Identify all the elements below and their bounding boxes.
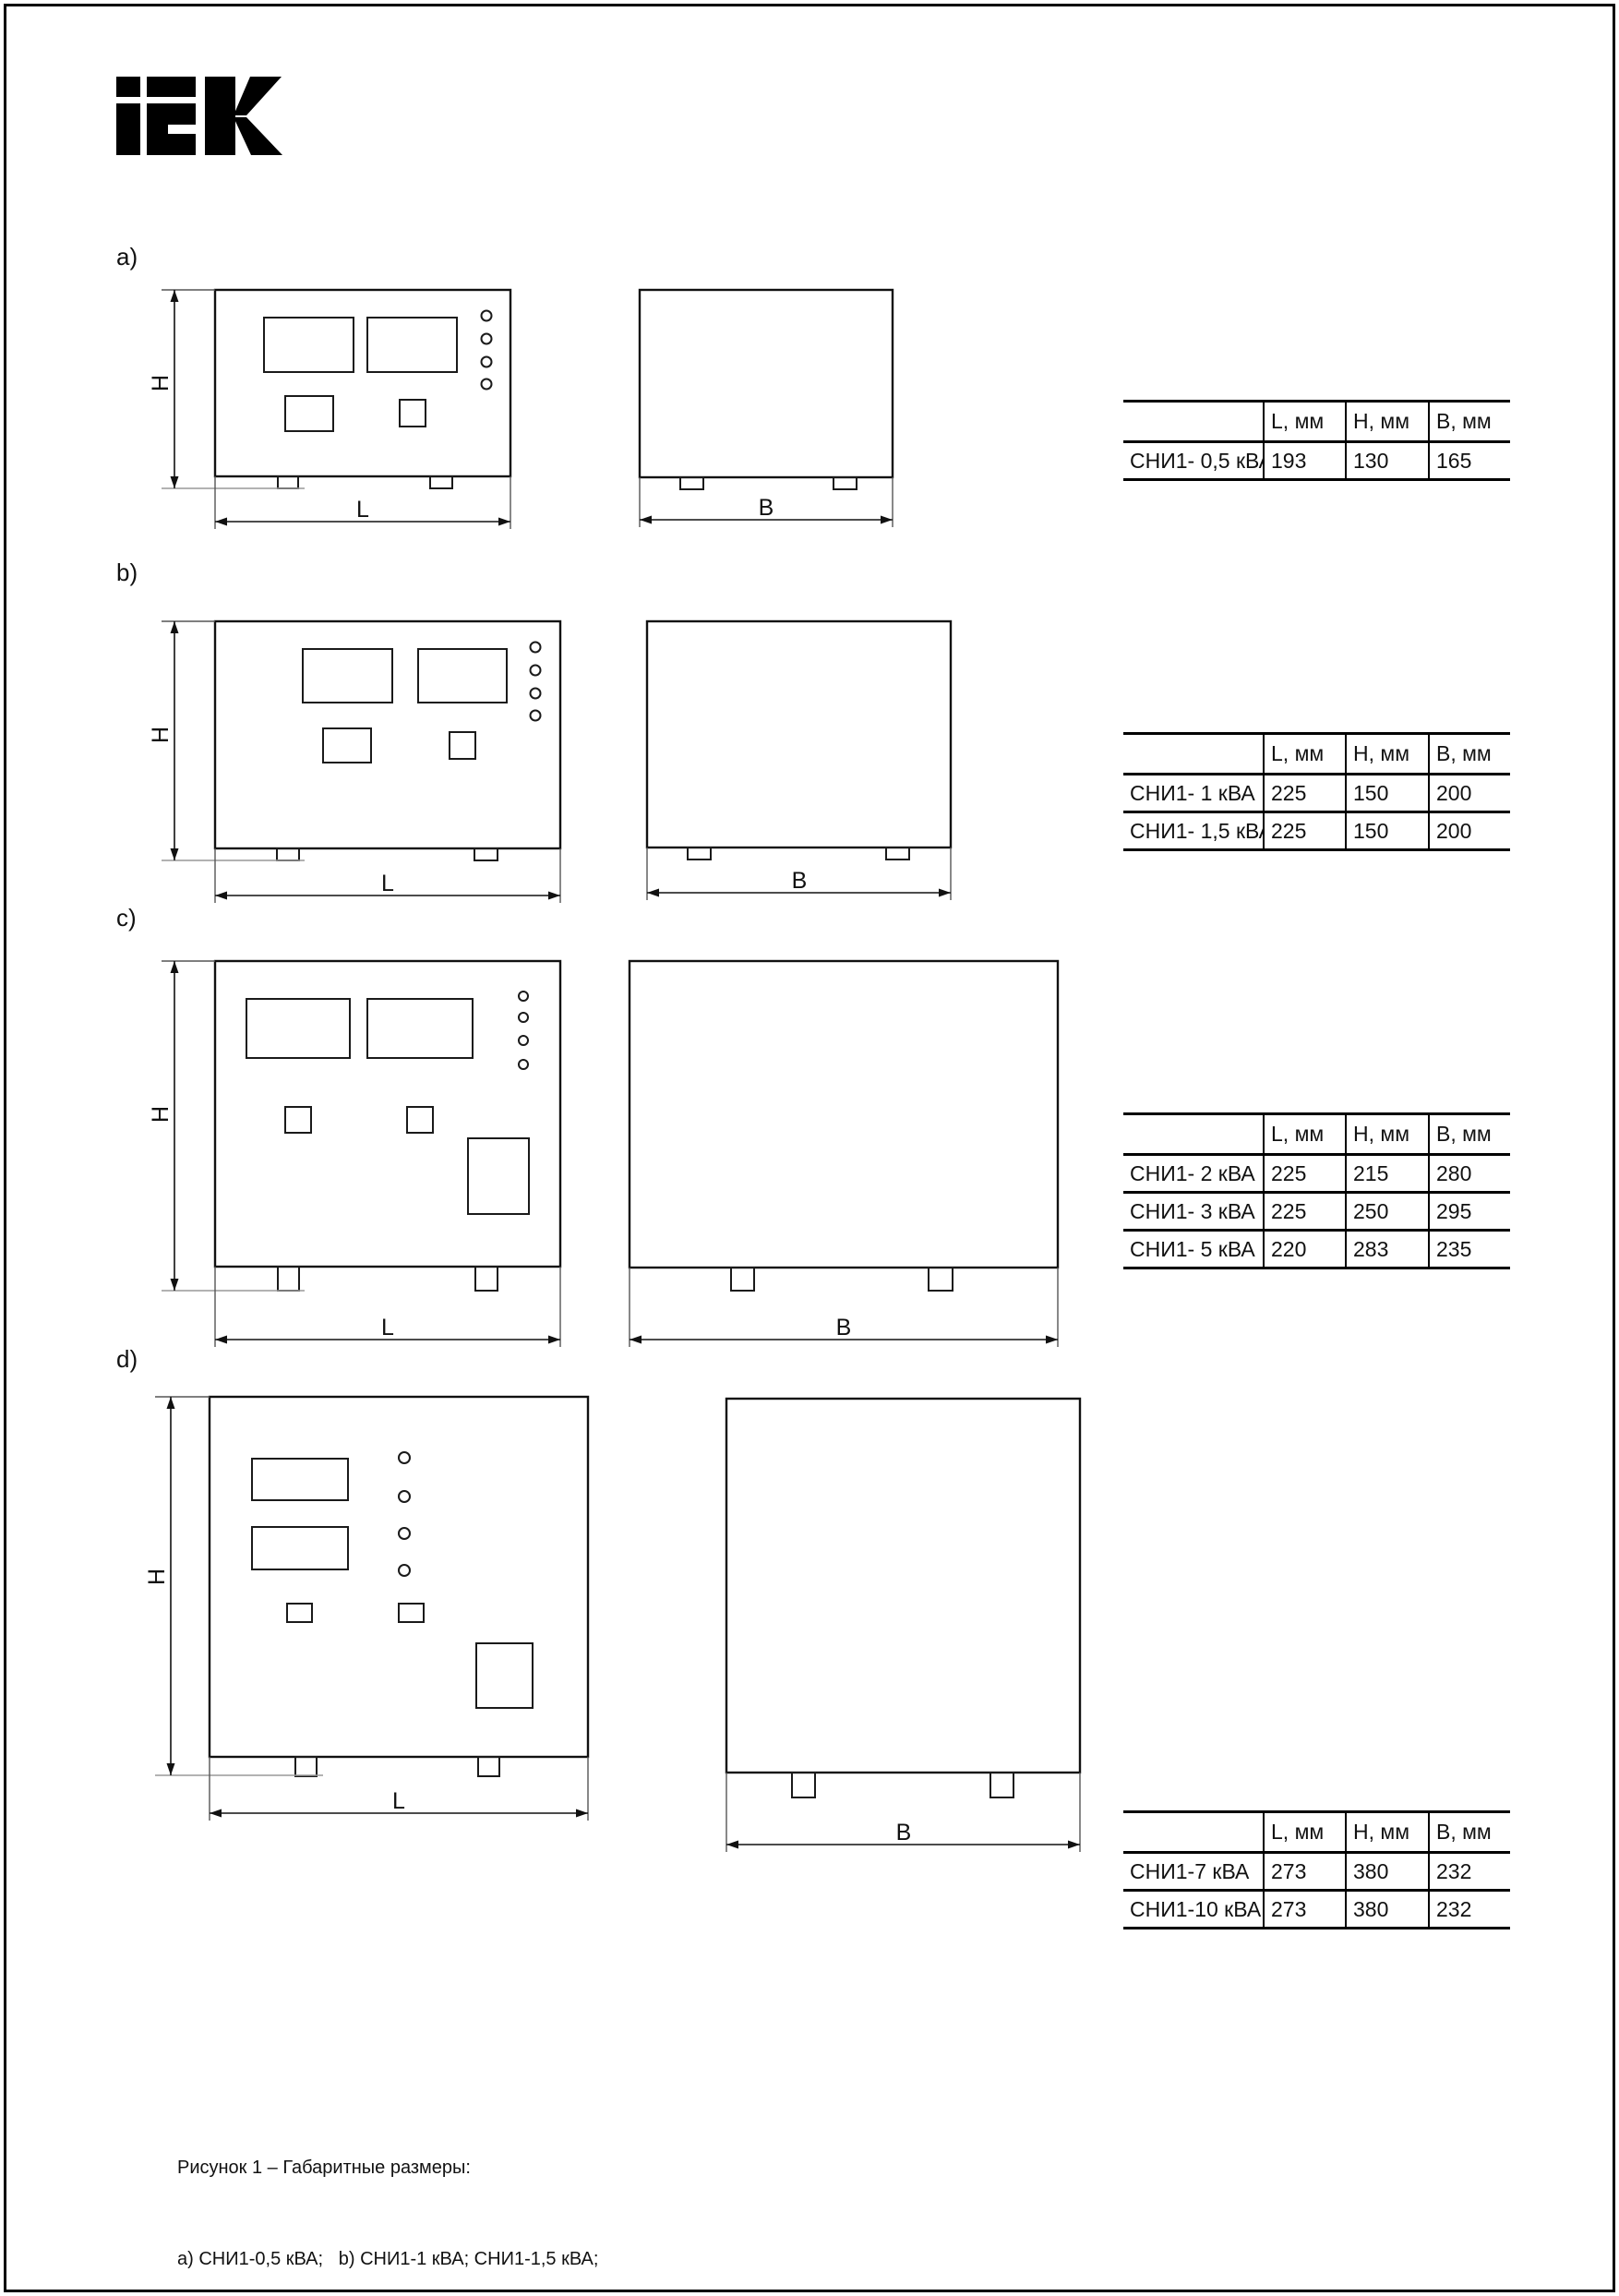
display-window [367, 999, 473, 1058]
foot [475, 1267, 498, 1291]
indicator-led [482, 311, 492, 321]
table-cell-model: СНИ1-10 кВА [1123, 1889, 1263, 1927]
caption-line-2: a) СНИ1-0,5 кВА; b) СНИ1-1 кВА; СНИ1-1,5… [177, 2244, 800, 2275]
section-d-front-view: H L [144, 1397, 588, 1821]
section-a-side-view: B [640, 290, 893, 527]
foot [731, 1268, 754, 1291]
foot [680, 477, 703, 489]
indicator-led [399, 1452, 410, 1463]
table-header-H: H, мм [1345, 403, 1428, 440]
foot [277, 848, 299, 860]
display-window [367, 318, 457, 372]
table-header-model [1123, 1813, 1263, 1851]
control-element [287, 1604, 312, 1622]
dimensions-table-b: L, мм H, мм B, мм СНИ1- 1 кВА 225 150 20… [1123, 732, 1510, 851]
dim-label-B: B [759, 495, 774, 521]
dim-label-L: L [392, 1788, 405, 1814]
table-header-model [1123, 735, 1263, 773]
table-header-L: L, мм [1263, 403, 1345, 440]
table-header-B: B, мм [1428, 1115, 1510, 1153]
table-header-B: B, мм [1428, 1813, 1510, 1851]
display-window [418, 649, 507, 703]
cabinet-front-c [215, 961, 560, 1267]
table-header-B: B, мм [1428, 735, 1510, 773]
table-cell-model: СНИ1- 3 кВА [1123, 1191, 1263, 1229]
foot [886, 847, 909, 859]
cabinet-front-d [210, 1397, 588, 1757]
foot [688, 847, 711, 859]
table-header-L: L, мм [1263, 735, 1345, 773]
dim-label-B: B [792, 868, 808, 894]
section-d-side-view: B [726, 1399, 1080, 1852]
dim-label-H: H [144, 1569, 170, 1585]
table-header-L: L, мм [1263, 1115, 1345, 1153]
control-element [400, 400, 426, 427]
indicator-led [519, 1060, 528, 1069]
table-cell-L: 225 [1263, 773, 1345, 811]
table-cell-H: 130 [1345, 440, 1428, 478]
table-cell-H: 283 [1345, 1229, 1428, 1267]
table-cell-L: 193 [1263, 440, 1345, 478]
section-c-front-view: H L [148, 961, 560, 1347]
table-cell-model: СНИ1-7 кВА [1123, 1851, 1263, 1889]
dim-label-L: L [356, 497, 369, 523]
dim-label-L: L [381, 1315, 394, 1340]
foot [929, 1268, 953, 1291]
table-header-H: H, мм [1345, 1813, 1428, 1851]
indicator-led [519, 992, 528, 1001]
foot [833, 477, 857, 489]
table-cell-H: 250 [1345, 1191, 1428, 1229]
cabinet-front-a [215, 290, 510, 476]
table-cell-H: 380 [1345, 1851, 1428, 1889]
foot [792, 1773, 815, 1797]
cabinet-side-b [647, 621, 951, 847]
foot [278, 1267, 299, 1291]
table-cell-B: 200 [1428, 811, 1510, 848]
dim-label-B: B [836, 1315, 852, 1340]
indicator-led [482, 357, 492, 367]
table-cell-L: 225 [1263, 1153, 1345, 1191]
foot [278, 476, 298, 488]
table-cell-B: 295 [1428, 1191, 1510, 1229]
table-cell-L: 225 [1263, 1191, 1345, 1229]
dimensions-table-a: L, мм H, мм B, мм СНИ1- 0,5 кВА 193 130 … [1123, 400, 1510, 481]
table-cell-B: 280 [1428, 1153, 1510, 1191]
document-page: IEK a) b) c) d) H [0, 0, 1619, 2296]
cabinet-side-c [630, 961, 1058, 1268]
indicator-led [519, 1013, 528, 1022]
control-element [407, 1107, 433, 1133]
control-element [323, 728, 371, 763]
dim-label-H: H [148, 375, 174, 391]
section-b-front-view: H L [148, 621, 560, 903]
table-cell-B: 165 [1428, 440, 1510, 478]
table-cell-B: 232 [1428, 1889, 1510, 1927]
figure-caption: Рисунок 1 – Габаритные размеры: a) СНИ1-… [177, 2092, 800, 2296]
indicator-led [399, 1491, 410, 1502]
table-cell-L: 225 [1263, 811, 1345, 848]
indicator-led [399, 1528, 410, 1539]
dim-label-H: H [148, 1106, 174, 1123]
display-window [303, 649, 392, 703]
indicator-led [482, 379, 492, 390]
control-element [399, 1604, 424, 1622]
table-cell-model: СНИ1- 0,5 кВА [1123, 440, 1263, 478]
display-window [264, 318, 354, 372]
table-cell-model: СНИ1- 1,5 кВА [1123, 811, 1263, 848]
control-element [285, 396, 333, 431]
table-cell-B: 232 [1428, 1851, 1510, 1889]
indicator-led [519, 1036, 528, 1045]
indicator-led [531, 643, 541, 653]
indicator-led [531, 689, 541, 699]
indicator-led [531, 666, 541, 676]
display-window [252, 1459, 348, 1500]
display-window [252, 1527, 348, 1569]
table-cell-B: 200 [1428, 773, 1510, 811]
foot [295, 1757, 317, 1776]
table-cell-model: СНИ1- 5 кВА [1123, 1229, 1263, 1267]
control-element [450, 732, 475, 759]
dim-label-B: B [896, 1820, 912, 1845]
table-cell-L: 273 [1263, 1851, 1345, 1889]
display-window [246, 999, 350, 1058]
table-cell-model: СНИ1- 2 кВА [1123, 1153, 1263, 1191]
cabinet-side-a [640, 290, 893, 477]
terminal-block [476, 1643, 533, 1708]
table-cell-L: 273 [1263, 1889, 1345, 1927]
indicator-led [531, 711, 541, 721]
indicator-led [399, 1565, 410, 1576]
foot [430, 476, 452, 488]
table-cell-H: 215 [1345, 1153, 1428, 1191]
table-cell-H: 380 [1345, 1889, 1428, 1927]
dimensions-table-d: L, мм H, мм B, мм СНИ1-7 кВА 273 380 232… [1123, 1810, 1510, 1929]
dim-label-H: H [148, 727, 174, 743]
caption-line-1: Рисунок 1 – Габаритные размеры: [177, 2153, 800, 2183]
table-header-H: H, мм [1345, 735, 1428, 773]
table-header-H: H, мм [1345, 1115, 1428, 1153]
foot [478, 1757, 499, 1776]
terminal-block [468, 1138, 529, 1214]
table-cell-H: 150 [1345, 773, 1428, 811]
section-c-side-view: B [630, 961, 1058, 1347]
dimensions-table-c: L, мм H, мм B, мм СНИ1- 2 кВА 225 215 28… [1123, 1112, 1510, 1269]
table-cell-L: 220 [1263, 1229, 1345, 1267]
foot [990, 1773, 1013, 1797]
section-a-front-view: H L [148, 290, 510, 529]
control-element [285, 1107, 311, 1133]
cabinet-side-d [726, 1399, 1080, 1773]
indicator-led [482, 334, 492, 344]
table-header-model [1123, 1115, 1263, 1153]
cabinet-front-b [215, 621, 560, 848]
table-header-model [1123, 403, 1263, 440]
table-cell-B: 235 [1428, 1229, 1510, 1267]
dim-label-L: L [381, 871, 394, 896]
table-cell-H: 150 [1345, 811, 1428, 848]
table-header-L: L, мм [1263, 1813, 1345, 1851]
section-b-side-view: B [647, 621, 951, 900]
table-cell-model: СНИ1- 1 кВА [1123, 773, 1263, 811]
foot [474, 848, 498, 860]
table-header-B: B, мм [1428, 403, 1510, 440]
